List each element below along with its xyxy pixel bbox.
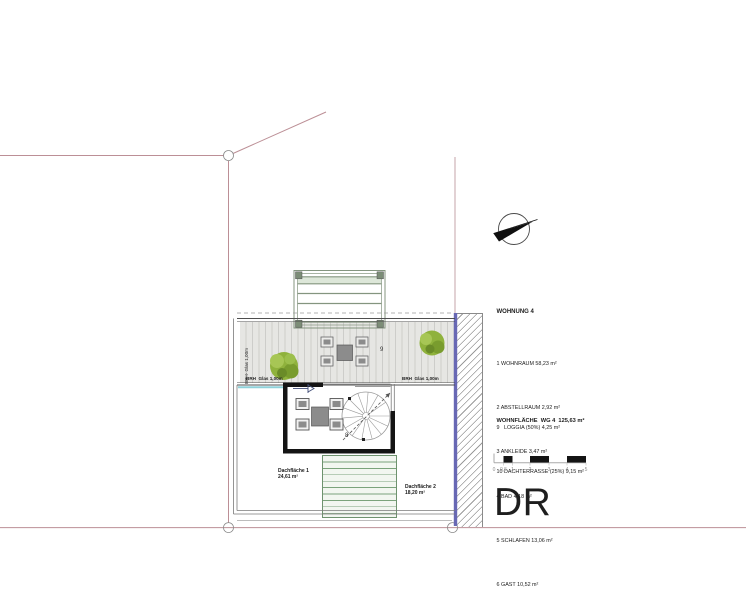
room-seating xyxy=(296,399,343,431)
scale-tick-label: 2 xyxy=(529,467,532,473)
legend-room-row: 6 GAST 10,52 m² xyxy=(497,582,561,589)
plan-linework xyxy=(0,0,746,604)
dachflaeche-2-label: Dachfläche 2 18,20 m² xyxy=(405,484,436,497)
legend-partial-row: 9 LOGGIA (50%) 4,25 m² xyxy=(497,425,584,432)
pergola-structure xyxy=(294,271,385,329)
brh-glas-bottom-right-label: BRH Glas 1,00m xyxy=(402,376,439,381)
scale-tick-label: 0,5 xyxy=(500,467,507,473)
spiral-stair xyxy=(342,392,390,441)
legend-partial-row: 10 DACHTERRASSE (25%) 9,15 m² xyxy=(497,469,584,476)
scale-tick-label: 0 xyxy=(493,467,496,473)
terrace-seating xyxy=(321,337,368,366)
legend-room-row: 5 SCHLAFEN 13,06 m² xyxy=(497,538,561,545)
sheet-initials: DR xyxy=(494,483,551,522)
scale-tick-label: 1 xyxy=(511,467,514,473)
brh-glas-bottom-left-label: BRH Glas 1,00m xyxy=(246,376,283,381)
legend-room-row: 1 WOHNRAUM 58,23 m² xyxy=(497,361,561,368)
dachflaeche-1-label: Dachfläche 1 24,61 m² xyxy=(278,468,309,481)
north-arrow-icon xyxy=(494,214,538,245)
tree-icon xyxy=(420,331,445,356)
room-table xyxy=(312,407,329,426)
floor-plan-sheet: BRH- Glas 1,00m BRH Glas 1,00m BRH Glas … xyxy=(0,0,746,604)
legend-total-label: WOHNFLÄCHE WG 4 125,63 m² xyxy=(497,418,585,425)
terrace-number-label: 9 xyxy=(380,347,383,354)
scale-tick-label: 5 xyxy=(585,467,588,473)
scale-tick-label: 3 xyxy=(548,467,551,473)
legend-title: WOHNUNG 4 xyxy=(497,309,534,316)
scale-tick-label: 4 xyxy=(566,467,569,473)
room-walls xyxy=(283,383,395,454)
room-number-label: 8 xyxy=(345,433,348,440)
terrace-table xyxy=(337,345,353,361)
boundary-point-icon xyxy=(224,151,234,161)
